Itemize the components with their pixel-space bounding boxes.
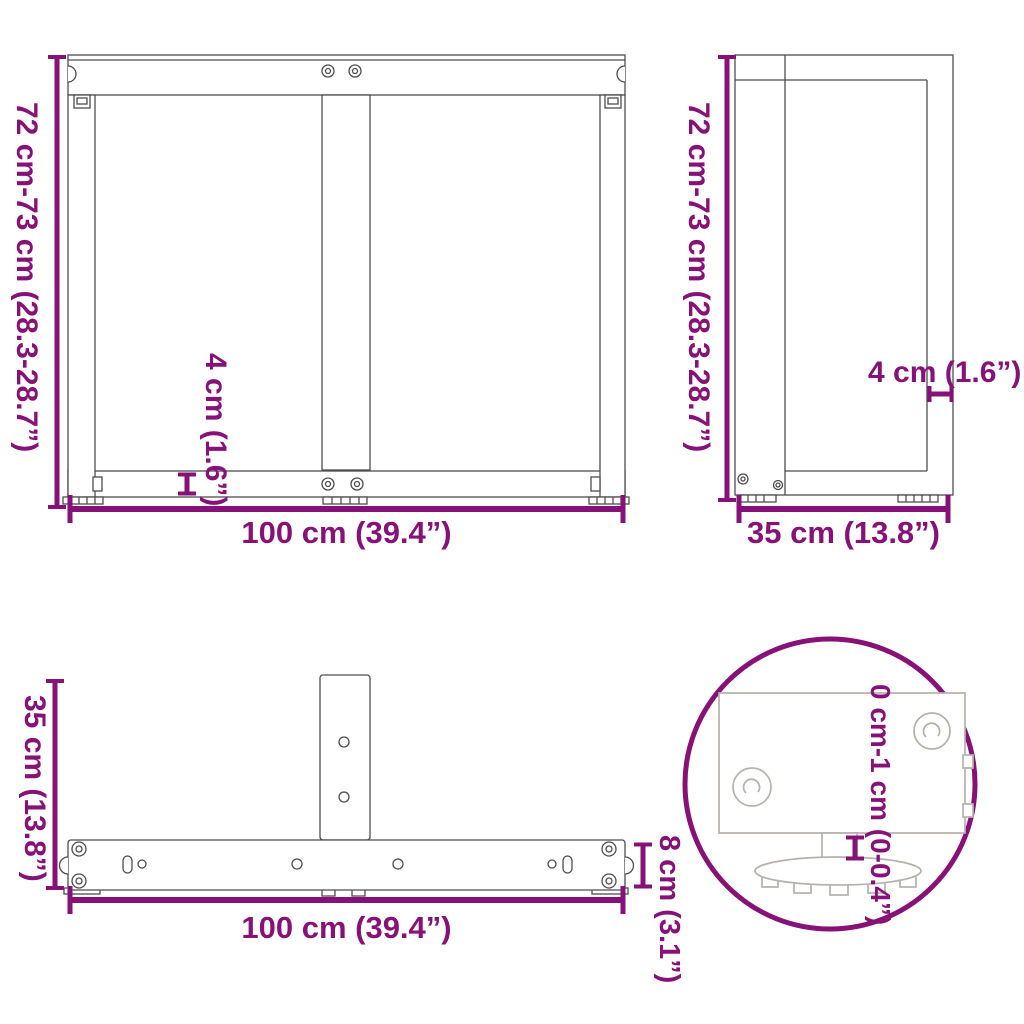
- edge-bump-icon: [625, 857, 634, 874]
- front-bottom-bar: [68, 471, 625, 497]
- side-view: [735, 55, 953, 502]
- top-bar-width-label: 8 cm (3.1”): [652, 835, 684, 983]
- front-view: [63, 55, 629, 504]
- front-height-dim-line: [48, 57, 66, 507]
- top-width-label: 100 cm (39.4”): [68, 911, 625, 945]
- side-height-dim-line: [718, 57, 736, 500]
- top-bar-width-dim-marker: [634, 844, 652, 887]
- foot-adjust-range-label: 0 cm-1 cm (0-0.4”): [864, 684, 895, 925]
- front-center-column: [322, 95, 370, 470]
- front-thickness-label: 4 cm (1.6”): [199, 353, 232, 506]
- product-dimension-diagram: 72 cm-73 cm (28.3-28.7”) 4 cm (1.6”) 100…: [0, 0, 1024, 1024]
- top-view-column-plate: [320, 675, 370, 840]
- side-feet: [740, 495, 938, 502]
- side-thickness-label: 4 cm (1.6”): [868, 356, 1021, 389]
- front-width-label: 100 cm (39.4”): [68, 516, 625, 550]
- side-height-label: 72 cm-73 cm (28.3-28.7”): [682, 102, 715, 452]
- edge-bump-icon: [60, 857, 69, 874]
- front-height-label: 72 cm-73 cm (28.3-28.7”): [10, 102, 43, 452]
- front-feet: [63, 497, 629, 504]
- top-view: [60, 675, 634, 896]
- foot-detail-view: [685, 639, 975, 929]
- front-right-leg: [591, 95, 625, 497]
- top-view-bar: [60, 840, 634, 890]
- side-depth-label: 35 cm (13.8”): [737, 516, 950, 550]
- top-depth-label: 35 cm (13.8”): [18, 695, 51, 882]
- front-left-leg: [68, 95, 102, 497]
- front-top-bar: [68, 55, 625, 95]
